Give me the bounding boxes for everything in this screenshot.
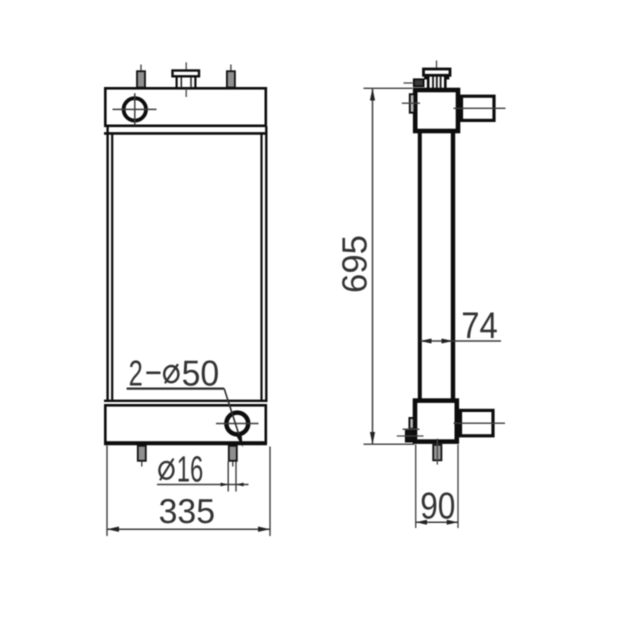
- svg-text:50: 50: [182, 352, 220, 393]
- svg-text:695: 695: [336, 235, 375, 293]
- svg-text:2: 2: [129, 352, 143, 393]
- svg-text:90: 90: [420, 484, 455, 526]
- svg-text:16: 16: [177, 449, 204, 490]
- svg-text:335: 335: [159, 493, 215, 531]
- svg-text:74: 74: [461, 305, 498, 346]
